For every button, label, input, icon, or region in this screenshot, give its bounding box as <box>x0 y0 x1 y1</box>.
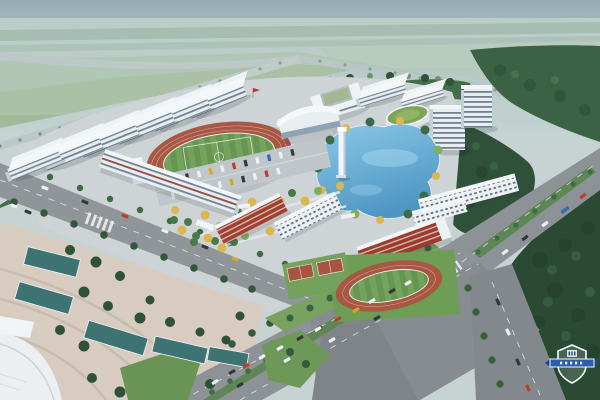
rendering-canvas <box>0 0 600 400</box>
aerial-campus-rendering <box>0 0 600 400</box>
interchange-tree <box>286 348 294 356</box>
interchange-tree <box>302 360 310 368</box>
